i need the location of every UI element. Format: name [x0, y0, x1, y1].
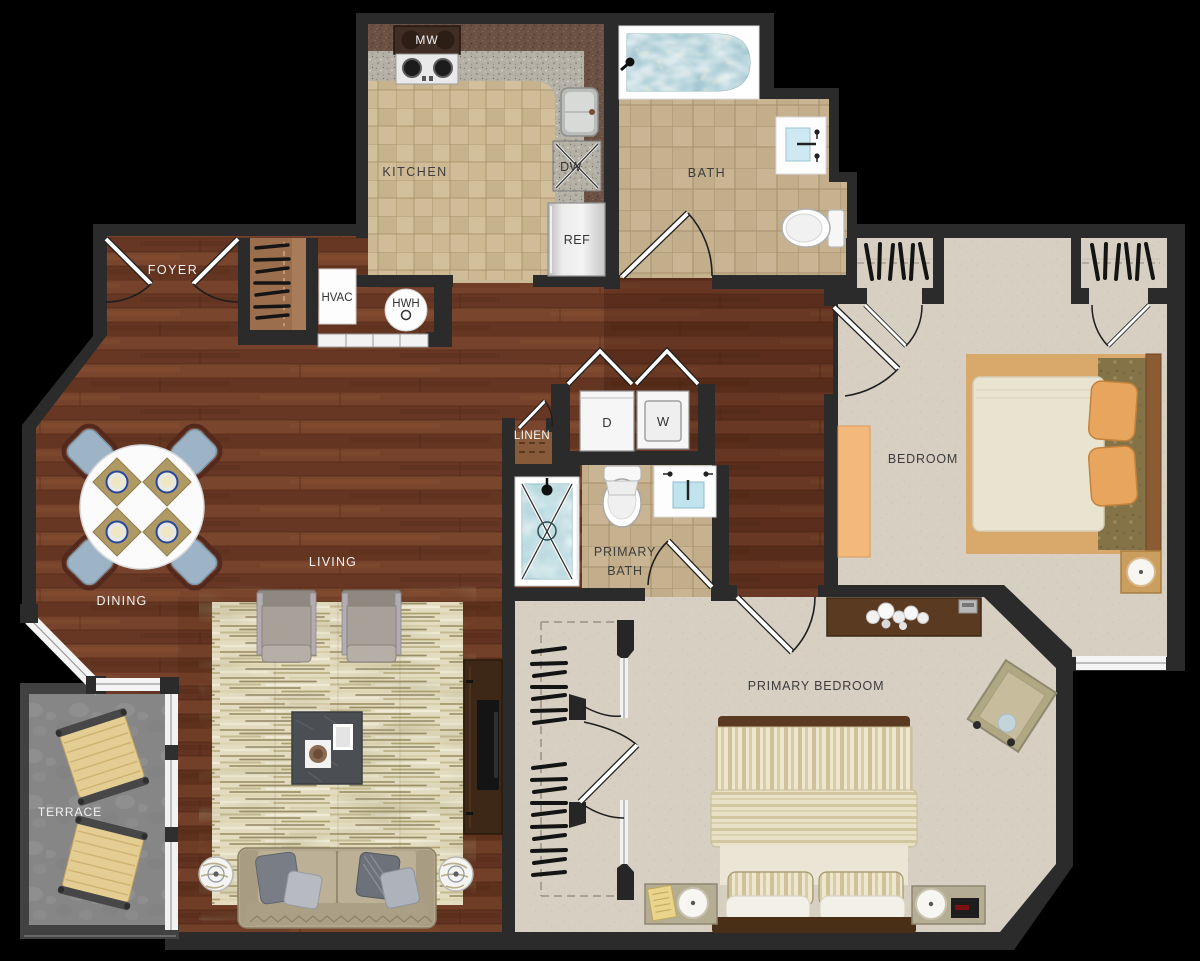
svg-text:DINING: DINING [97, 594, 148, 608]
svg-text:BATH: BATH [607, 564, 643, 578]
svg-text:LIVING: LIVING [309, 555, 357, 569]
svg-text:W: W [657, 414, 670, 429]
svg-text:PRIMARY: PRIMARY [594, 545, 656, 559]
svg-text:HVAC: HVAC [321, 292, 352, 304]
svg-text:REF: REF [564, 233, 591, 247]
svg-text:MW: MW [415, 33, 438, 47]
svg-text:KITCHEN: KITCHEN [382, 165, 447, 179]
svg-text:BEDROOM: BEDROOM [888, 452, 958, 466]
svg-text:FOYER: FOYER [148, 263, 199, 277]
svg-text:DW: DW [560, 160, 582, 174]
svg-text:TERRACE: TERRACE [38, 805, 102, 819]
svg-text:HWH: HWH [392, 298, 419, 310]
svg-text:LINEN: LINEN [514, 430, 550, 442]
svg-text:PRIMARY BEDROOM: PRIMARY BEDROOM [748, 679, 885, 693]
svg-text:D: D [602, 415, 611, 430]
svg-text:BATH: BATH [688, 166, 726, 180]
